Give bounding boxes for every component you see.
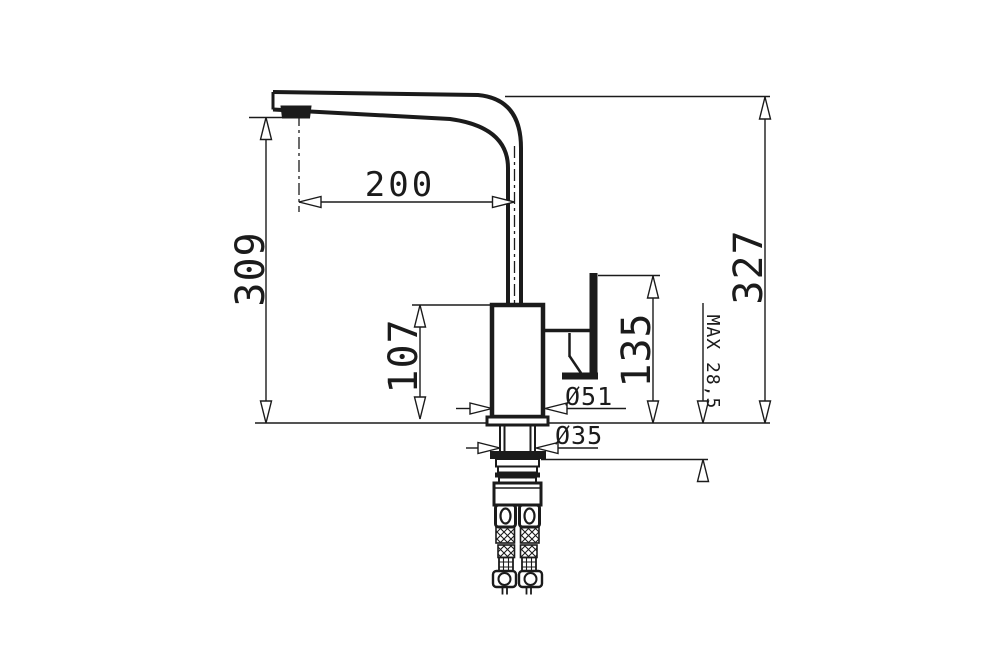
fastening-nut — [494, 483, 541, 505]
shank-ring-1 — [496, 459, 539, 467]
arrowhead-top-327 — [760, 97, 771, 119]
under-counter-assembly — [490, 425, 546, 595]
braided-hose-right-upper — [521, 527, 540, 543]
aerator — [281, 106, 311, 118]
braided-hose-left-lower — [498, 545, 515, 558]
braided-hose-left-upper — [496, 527, 515, 543]
hose-connector-left-hole — [499, 573, 511, 585]
mounting-shank — [500, 425, 535, 451]
dimension-max-counter-thickness: MAX 28,5 — [698, 303, 724, 482]
faucet-outline — [273, 92, 598, 425]
hose-tube-left-body — [499, 558, 513, 572]
arrowhead-right-200 — [493, 197, 515, 208]
braided-hose-right-lower — [521, 545, 538, 558]
dimension-label-309: 309 — [228, 231, 274, 306]
mounting-flange — [490, 451, 546, 459]
dimension-spout-outlet-height: 309 — [228, 118, 274, 424]
dimension-label-107: 107 — [381, 318, 427, 393]
arrowhead-bottom-107 — [415, 397, 426, 419]
arrowhead-left-d51 — [470, 403, 492, 414]
dimension-handle-height: 135 — [614, 276, 660, 423]
dimension-label-135: 135 — [614, 312, 660, 387]
dimension-label-d51: Ø51 — [565, 382, 613, 411]
dimension-body-height: 107 — [381, 305, 427, 419]
handle-lever — [590, 273, 598, 379]
dimension-label-max: MAX 28,5 — [702, 315, 723, 410]
technical-drawing-canvas: 200 309 327 135 107 MAX 28,5 — [0, 0, 997, 653]
hose-fitting-left-detail — [501, 509, 511, 524]
dimension-label-200: 200 — [365, 165, 435, 205]
faucet-body — [492, 305, 543, 417]
arrowhead-bottom-max — [698, 460, 709, 482]
shank-ring-2 — [498, 467, 537, 473]
base-plate — [487, 417, 548, 425]
arrowhead-top-135 — [648, 276, 659, 298]
hose-tube-right-body — [522, 558, 536, 572]
arrowhead-bottom-309 — [261, 401, 272, 423]
hose-fitting-right-detail — [525, 509, 535, 524]
arrowhead-left-200 — [299, 197, 321, 208]
spout-underside-outline — [273, 110, 508, 306]
dimension-total-height: 327 — [726, 97, 772, 423]
arrowhead-bottom-135 — [648, 401, 659, 423]
arrowhead-right-d51 — [545, 403, 567, 414]
dimension-spout-reach: 200 — [299, 165, 515, 208]
arrowhead-bottom-327 — [760, 401, 771, 423]
hose-tube-left — [499, 558, 513, 572]
dimension-label-327: 327 — [726, 229, 772, 304]
hose-connector-right-hole — [525, 573, 537, 585]
faucet-dimension-drawing: 200 309 327 135 107 MAX 28,5 — [0, 0, 997, 653]
hose-connector-tails — [503, 587, 532, 595]
hose-tube-right — [522, 558, 536, 572]
arrowhead-top-309 — [261, 118, 272, 140]
handle-joint-diagonal — [570, 356, 582, 373]
dimension-label-d35: Ø35 — [555, 421, 603, 450]
